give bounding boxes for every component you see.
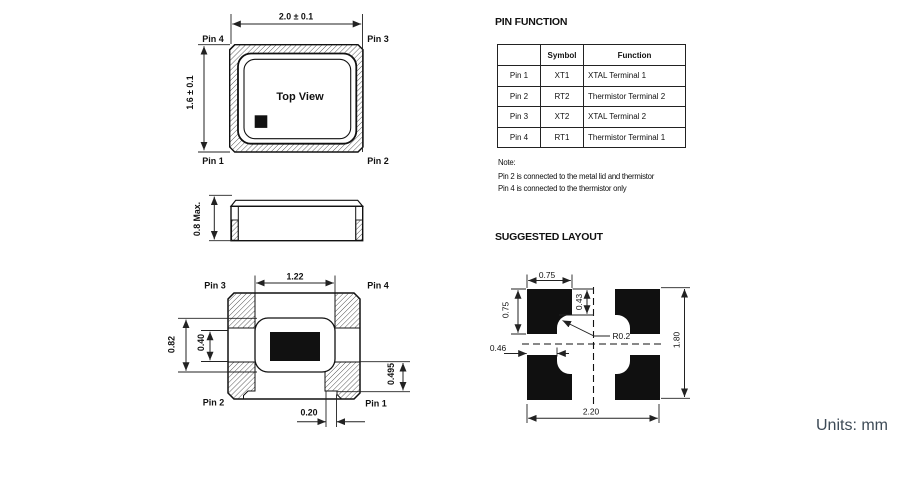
- cavity-width-dim: 1.22: [286, 272, 303, 282]
- note-line: Pin 4 is connected to the thermistor onl…: [498, 183, 654, 195]
- symbol-cell: XT1: [541, 66, 584, 87]
- layout-total-height-dim: 1.80: [672, 332, 682, 349]
- symbol-cell: RT1: [541, 127, 584, 148]
- side-view-height-dim: 0.8 Max.: [192, 202, 202, 236]
- note-block: Note: Pin 2 is connected to the metal li…: [498, 157, 654, 195]
- note-line: Pin 2 is connected to the metal lid and …: [498, 171, 654, 183]
- layout-pad-height-dim: 0.75: [501, 302, 511, 319]
- side-view-body: [231, 206, 363, 240]
- top-view-height-dim: 1.6 ± 0.1: [185, 75, 195, 109]
- side-view-drawing: 0.8 Max.: [192, 195, 363, 240]
- pin-cell: Pin 1: [498, 66, 541, 87]
- symbol-cell: RT2: [541, 86, 584, 107]
- side-view-lid: [231, 200, 363, 206]
- top-view-pin1-label: Pin 1: [202, 156, 224, 166]
- units-label: Units: mm: [816, 417, 888, 435]
- bottom-view-pin3-label: Pin 3: [204, 281, 226, 291]
- suggested-layout-title: SUGGESTED LAYOUT: [495, 231, 603, 243]
- header-cell-blank: [498, 45, 541, 66]
- table-row: Pin 4 RT1 Thermistor Terminal 1: [498, 127, 686, 148]
- package-drawing-svg: Top View 2.0 ± 0.1 1.6 ± 0.1 Pin 4 Pin 3…: [0, 0, 899, 480]
- inner-height-dim: 0.40: [196, 334, 206, 351]
- function-cell: Thermistor Terminal 1: [584, 127, 686, 148]
- bottom-pad-pin4: [335, 293, 360, 328]
- top-view-label: Top View: [276, 91, 324, 103]
- step-dim: 0.20: [300, 408, 317, 418]
- pin-function-table: Symbol Function Pin 1 XT1 XTAL Terminal …: [497, 44, 686, 148]
- layout-pad-width-dim: 0.75: [539, 270, 556, 280]
- layout-notch-top-dim: 0.43: [574, 294, 584, 311]
- top-view-drawing: Top View 2.0 ± 0.1 1.6 ± 0.1 Pin 4 Pin 3…: [185, 12, 389, 167]
- pin-cell: Pin 3: [498, 107, 541, 128]
- function-cell: Thermistor Terminal 2: [584, 86, 686, 107]
- table-header-row: Symbol Function: [498, 45, 686, 66]
- bottom-view-pin2-label: Pin 2: [203, 398, 225, 408]
- bottom-view-pin1-label: Pin 1: [365, 399, 387, 409]
- bottom-pad-pin3: [228, 293, 255, 328]
- layout-total-width-dim: 2.20: [583, 407, 600, 417]
- top-view-pin3-label: Pin 3: [367, 34, 389, 44]
- crystal-blank: [270, 332, 320, 361]
- table-row: Pin 2 RT2 Thermistor Terminal 2: [498, 86, 686, 107]
- pin-function-title: PIN FUNCTION: [495, 16, 567, 28]
- bottom-view-drawing: 1.22 0.82 0.40 0.495 0.20 Pin 3 Pin 4 Pi…: [167, 272, 411, 428]
- side-terminal-right: [356, 220, 363, 240]
- note-title: Note:: [498, 157, 654, 169]
- pad-height-dim: 0.495: [386, 363, 396, 385]
- table-row: Pin 3 XT2 XTAL Terminal 2: [498, 107, 686, 128]
- header-cell-symbol: Symbol: [541, 45, 584, 66]
- layout-corner-radius-dim: R0.2: [613, 331, 631, 341]
- top-view-pin2-label: Pin 2: [367, 156, 389, 166]
- datasheet-page: Top View 2.0 ± 0.1 1.6 ± 0.1 Pin 4 Pin 3…: [0, 0, 899, 480]
- pin-cell: Pin 2: [498, 86, 541, 107]
- pin1-index-mark: [255, 115, 268, 128]
- side-terminal-left: [232, 220, 239, 240]
- top-view-pin4-label: Pin 4: [202, 34, 224, 44]
- suggested-layout-drawing: 0.75 0.75 0.43 0.46 R0.2 1.80 2.: [490, 270, 690, 423]
- cavity-height-dim: 0.82: [167, 336, 177, 353]
- header-cell-function: Function: [584, 45, 686, 66]
- symbol-cell: XT2: [541, 107, 584, 128]
- pin-cell: Pin 4: [498, 127, 541, 148]
- table-row: Pin 1 XT1 XTAL Terminal 1: [498, 66, 686, 87]
- bottom-view-pin4-label: Pin 4: [367, 281, 389, 291]
- layout-notch-side-dim: 0.46: [490, 343, 507, 353]
- function-cell: XTAL Terminal 2: [584, 107, 686, 128]
- top-view-width-dim: 2.0 ± 0.1: [279, 12, 313, 22]
- function-cell: XTAL Terminal 1: [584, 66, 686, 87]
